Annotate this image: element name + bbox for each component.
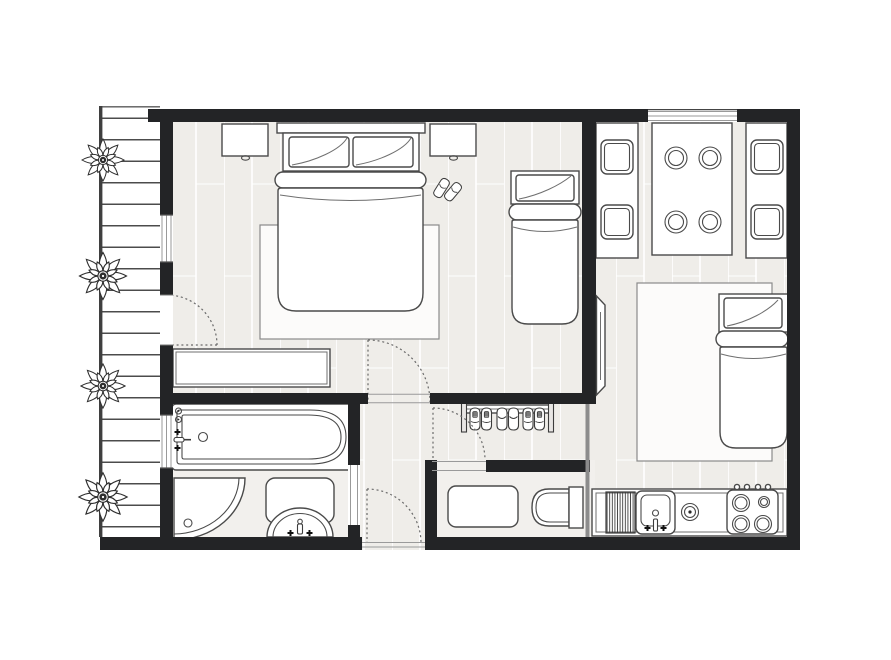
blanket	[720, 347, 787, 448]
blanket-band	[509, 204, 581, 220]
nightstand-right	[430, 124, 476, 160]
blanket	[512, 220, 578, 324]
seat-cushion	[751, 140, 783, 174]
kitchen-window	[648, 109, 737, 122]
wall-bottom-left	[100, 537, 362, 550]
bathroom-doorway	[348, 465, 360, 525]
wall-top-left	[148, 109, 648, 122]
glass-partition	[586, 404, 590, 537]
floor-plan: Studio Apartment Floor Plan	[0, 0, 891, 660]
washbasin-area	[266, 478, 334, 537]
wall-bottom-right	[425, 537, 800, 550]
wall-left-c	[160, 345, 173, 415]
wall-left-d	[160, 468, 173, 550]
sneaker-icon	[482, 408, 492, 430]
stove-top	[727, 490, 778, 534]
sneaker-icon	[470, 408, 480, 430]
plant-icon	[81, 364, 125, 408]
wall-wc-left	[425, 460, 437, 537]
wall-bedroom-south-a	[160, 393, 368, 404]
ring-burner	[682, 504, 699, 521]
seat-cushion	[601, 205, 633, 239]
pillow	[516, 175, 574, 201]
single-bed-kitchen	[716, 294, 788, 448]
wall-tv	[597, 296, 606, 395]
wall-bedroom-south-b	[430, 393, 596, 404]
toilet-tank	[569, 487, 583, 528]
dresser	[173, 349, 330, 387]
wall-wc-top-b	[486, 460, 590, 472]
blanket-band	[275, 172, 426, 188]
wall-right	[787, 109, 800, 550]
plant-icon	[79, 252, 126, 299]
bedroom-balcony-window	[160, 215, 173, 262]
rack-end-cap	[549, 403, 554, 432]
blanket-band	[716, 331, 788, 347]
pillow	[353, 137, 413, 167]
nightstand-left	[222, 124, 268, 160]
wall-divider-bedroom-kitchen	[582, 109, 596, 404]
bathtub	[172, 404, 353, 470]
drainboard	[606, 492, 635, 533]
seat-cushion	[751, 205, 783, 239]
wall-bathroom-right-a	[348, 404, 360, 465]
plant-icon	[79, 473, 127, 521]
blanket	[278, 188, 423, 311]
double-bed	[275, 123, 426, 311]
wall-left-b	[160, 262, 173, 295]
kitchen-sink	[636, 491, 675, 534]
single-bed-bedroom	[509, 171, 581, 324]
wall-bathroom-right-b	[348, 525, 360, 537]
dining-table	[652, 123, 732, 255]
seat-cushion	[601, 140, 633, 174]
plant-icon	[82, 139, 124, 181]
sneaker-icon	[535, 408, 545, 430]
pillow	[724, 298, 782, 328]
washing-machine	[448, 486, 518, 527]
dining-set	[596, 123, 787, 258]
toilet	[532, 487, 583, 528]
slipper-icon	[497, 408, 507, 430]
pillow	[289, 137, 349, 167]
balcony-door-opening	[160, 295, 173, 345]
wc-room	[448, 486, 583, 528]
wall-left-a	[160, 109, 173, 215]
balcony	[79, 106, 160, 537]
rack-end-cap	[462, 403, 467, 432]
sneaker-icon	[523, 408, 533, 430]
slipper-icon	[509, 408, 519, 430]
kitchen-counter	[592, 484, 787, 536]
bathroom-balcony-window	[160, 415, 173, 468]
